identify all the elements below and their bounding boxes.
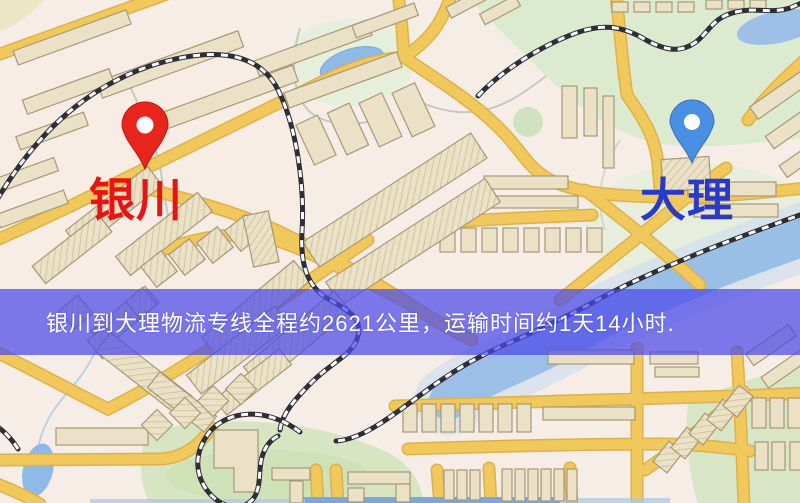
destination-pin-icon [668, 99, 716, 165]
city-map [0, 0, 800, 503]
route-info-banner: 银川到大理物流专线全程约2621公里，运输时间约1天14小时. [0, 289, 800, 355]
origin-label: 银川 [66, 178, 206, 224]
route-info-text: 银川到大理物流专线全程约2621公里，运输时间约1天14小时. [0, 306, 675, 338]
origin-pin-icon [120, 101, 170, 171]
destination-label: 大理 [617, 178, 757, 224]
map-screenshot: 银川 大理 银川到大理物流专线全程约2621公里，运输时间约1天14小时. [0, 0, 800, 503]
